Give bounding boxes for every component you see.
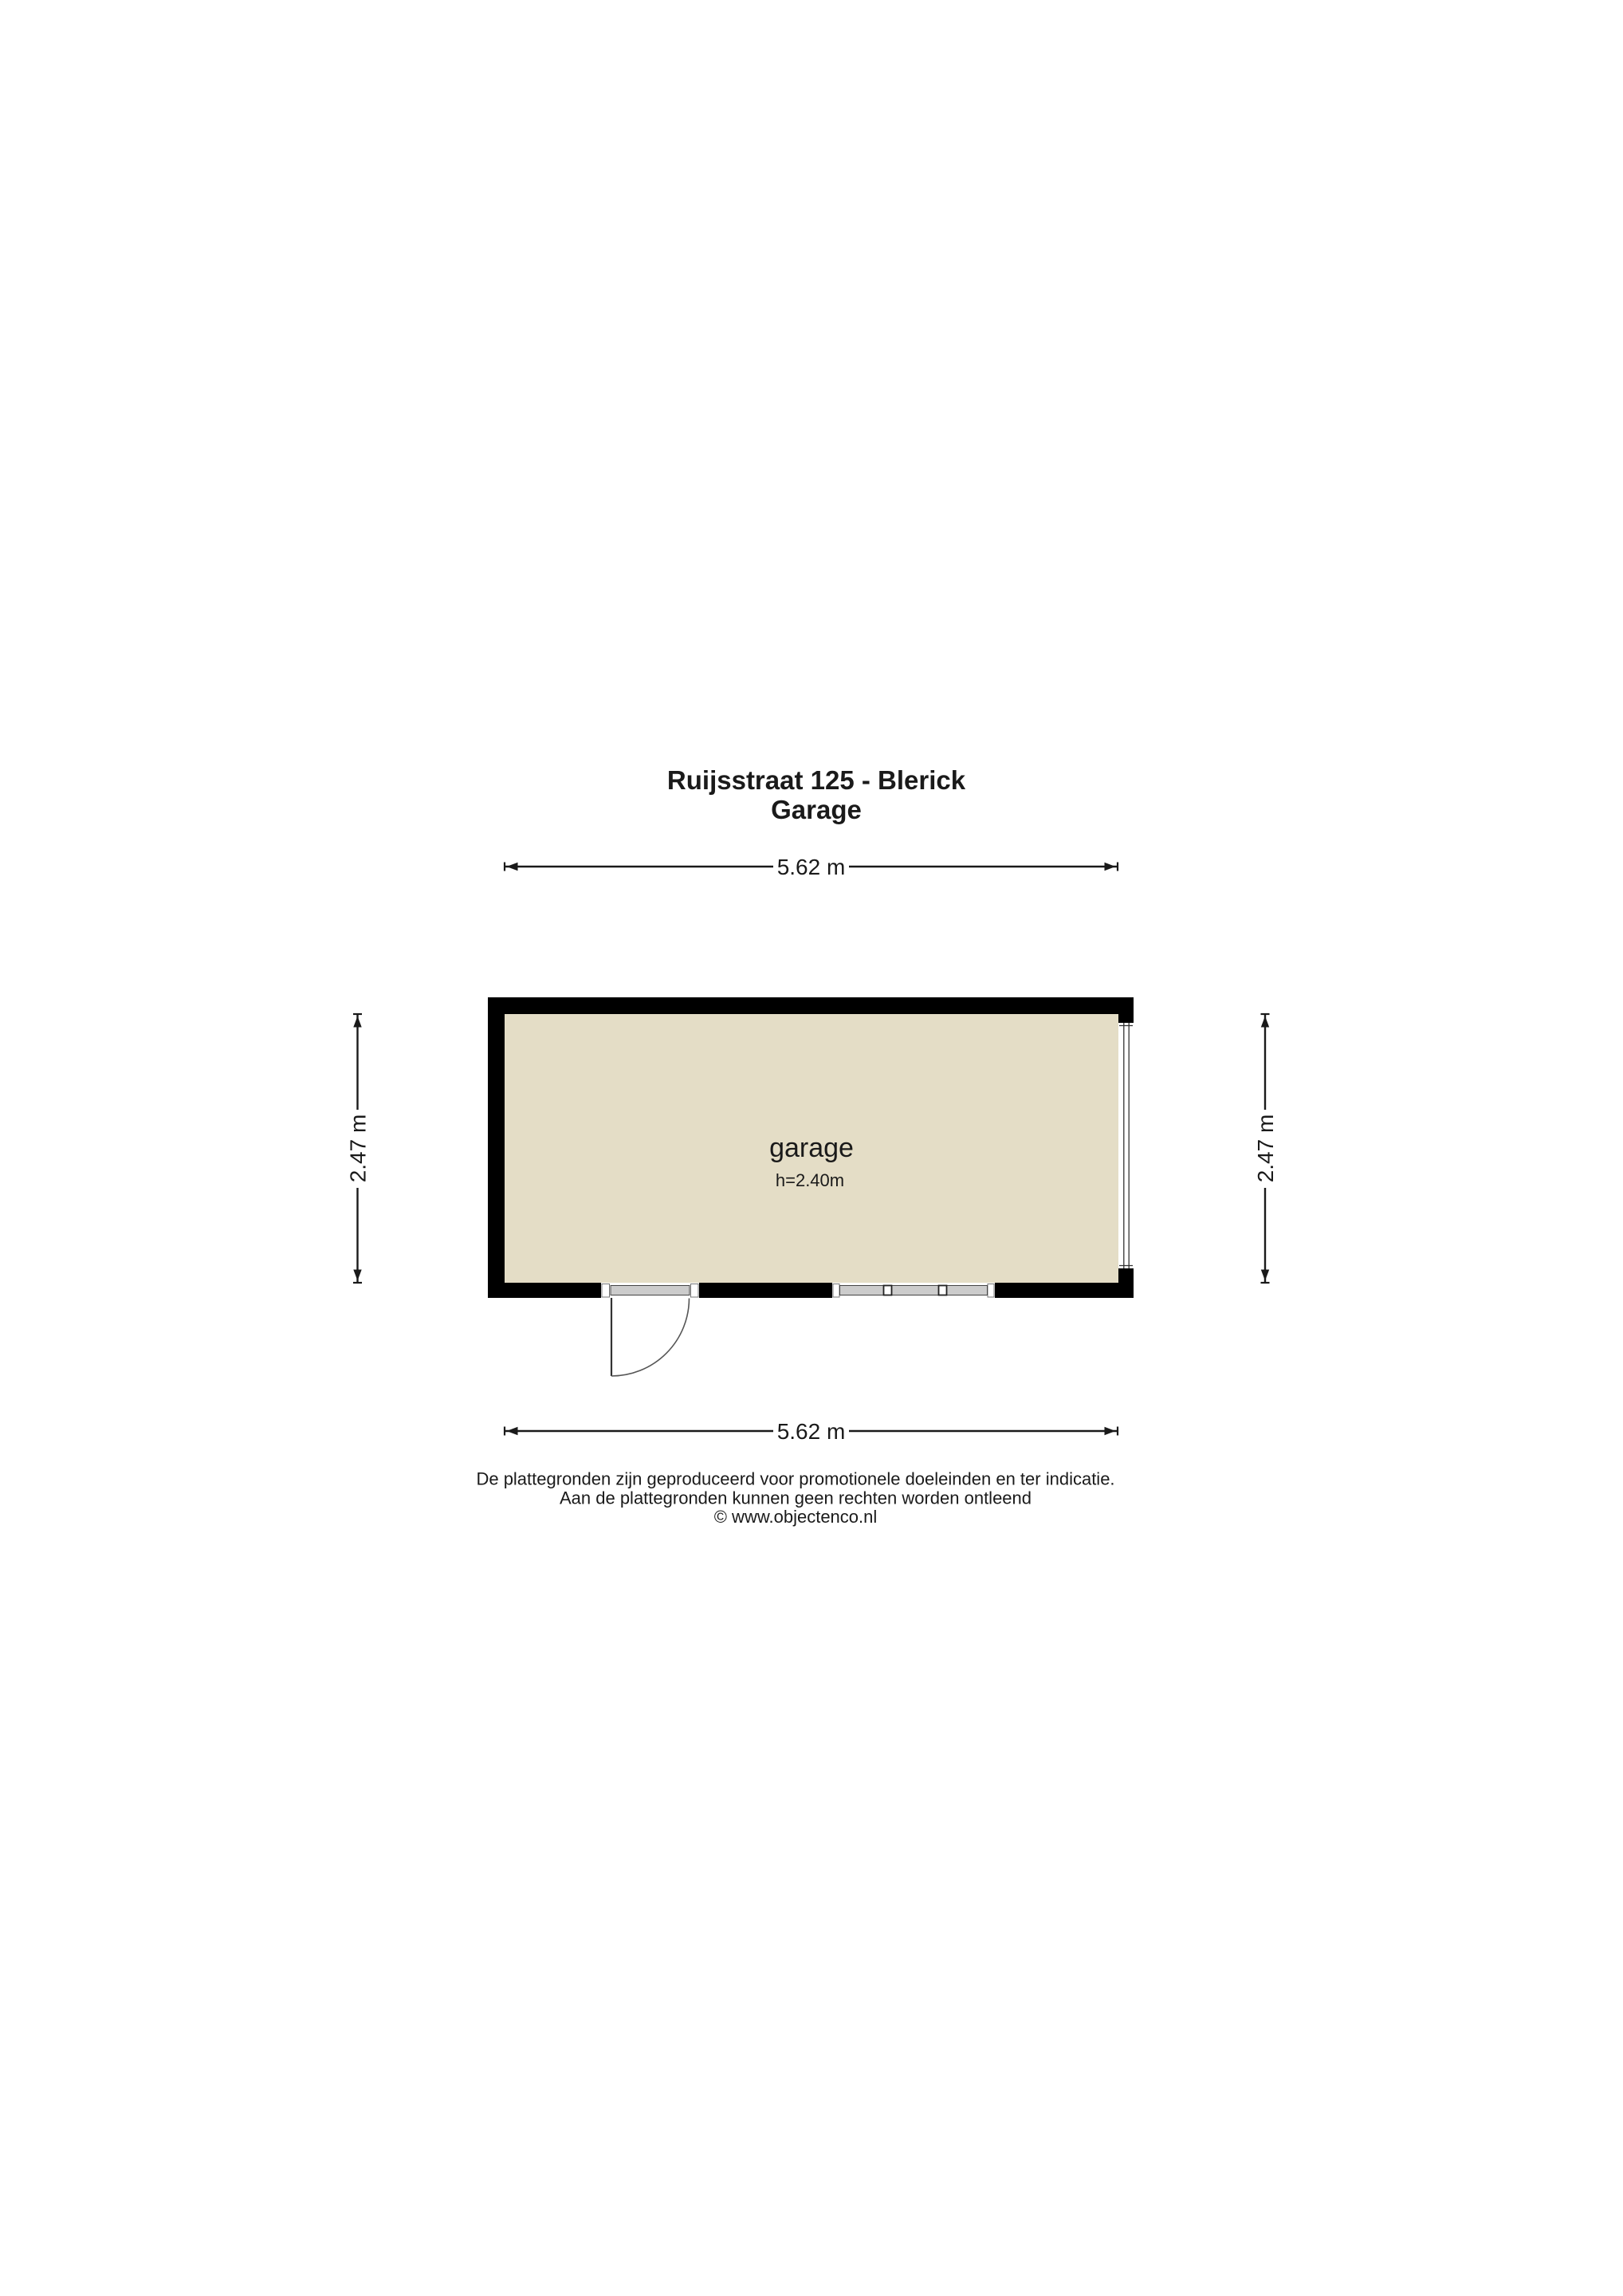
svg-text:Aan de plattegronden kunnen ge: Aan de plattegronden kunnen geen rechten… (560, 1488, 1032, 1508)
svg-text:© www.objectenco.nl: © www.objectenco.nl (714, 1507, 878, 1527)
svg-text:h=2.40m: h=2.40m (776, 1170, 844, 1190)
svg-text:Ruijsstraat 125 - Blerick: Ruijsstraat 125 - Blerick (667, 765, 966, 795)
svg-text:Garage: Garage (771, 795, 862, 824)
svg-text:5.62 m: 5.62 m (777, 1419, 846, 1444)
svg-text:2.47 m: 2.47 m (346, 1115, 371, 1183)
svg-text:5.62 m: 5.62 m (777, 855, 846, 879)
svg-text:2.47 m: 2.47 m (1253, 1115, 1278, 1183)
svg-text:De plattegronden zijn geproduc: De plattegronden zijn geproduceerd voor … (476, 1469, 1114, 1489)
svg-text:garage: garage (769, 1133, 854, 1163)
